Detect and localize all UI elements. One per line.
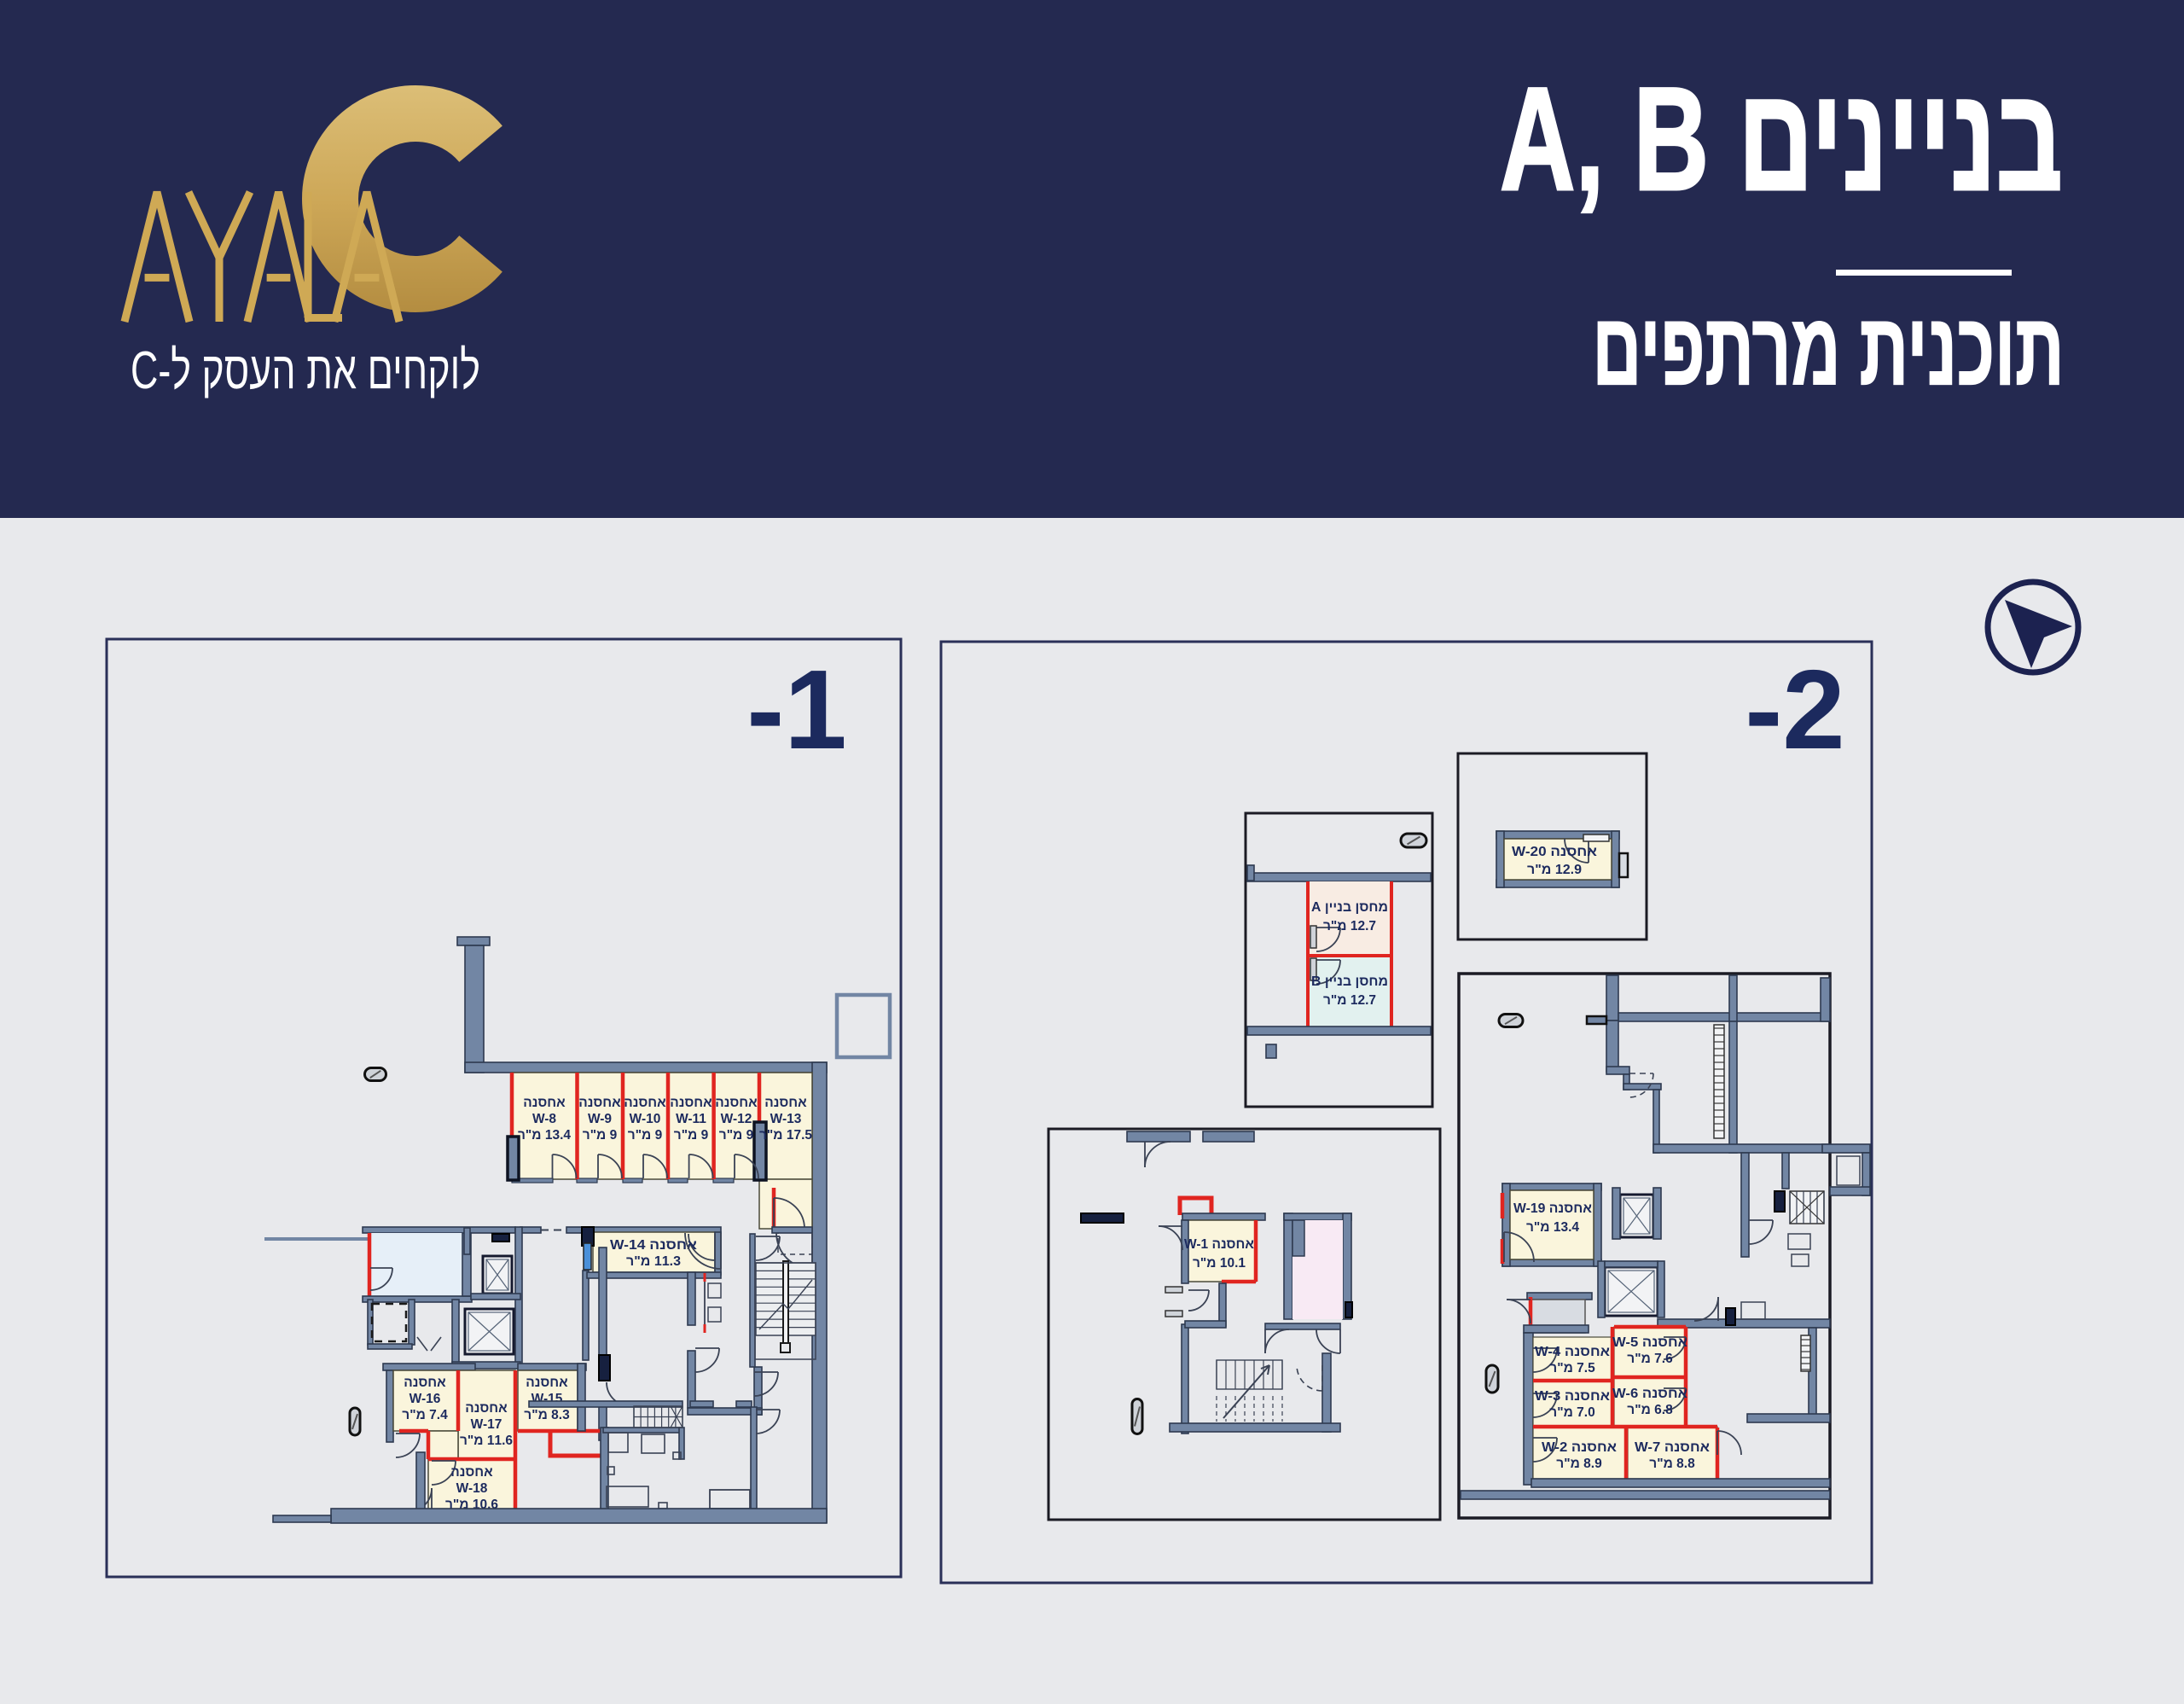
- svg-text:W-16: W-16: [409, 1392, 441, 1406]
- svg-text:W-11: W-11: [676, 1112, 706, 1126]
- svg-text:11.3 מ"ר: 11.3 מ"ר: [626, 1254, 681, 1269]
- svg-text:אחסנה: אחסנה: [624, 1096, 666, 1110]
- svg-text:10.1 מ"ר: 10.1 מ"ר: [1193, 1256, 1246, 1271]
- svg-text:12.7 מ"ר: 12.7 מ"ר: [1323, 993, 1376, 1008]
- svg-text:אחסנה: אחסנה: [404, 1375, 446, 1390]
- svg-text:-2: -2: [1745, 647, 1844, 772]
- svg-text:אחסנה: אחסנה: [450, 1465, 493, 1480]
- svg-text:8.3 מ"ר: 8.3 מ"ר: [524, 1408, 570, 1422]
- svg-text:אחסנה W-19: אחסנה W-19: [1513, 1201, 1592, 1216]
- svg-text:13.4 מ"ר: 13.4 מ"ר: [518, 1128, 571, 1143]
- svg-text:לוקחים את העסק ל-C: לוקחים את העסק ל-C: [131, 341, 480, 400]
- svg-text:9 מ"ר: 9 מ"ר: [583, 1128, 618, 1143]
- svg-text:אחסנה W-5: אחסנה W-5: [1612, 1335, 1687, 1350]
- svg-text:אחסנה W-4: אחסנה W-4: [1535, 1345, 1610, 1359]
- svg-text:W-12: W-12: [721, 1112, 752, 1126]
- svg-text:תוכנית מרתפים: תוכנית מרתפים: [1593, 292, 2065, 406]
- svg-text:7.6 מ"ר: 7.6 מ"ר: [1627, 1352, 1673, 1366]
- svg-text:8.8 מ"ר: 8.8 מ"ר: [1649, 1457, 1695, 1471]
- svg-text:17.5 מ"ר: 17.5 מ"ר: [759, 1128, 812, 1143]
- svg-text:W-9: W-9: [588, 1112, 612, 1126]
- svg-text:13.4 מ"ר: 13.4 מ"ר: [1526, 1220, 1579, 1235]
- svg-text:אחסנה W-2: אחסנה W-2: [1542, 1440, 1617, 1455]
- svg-text:9 מ"ר: 9 מ"ר: [719, 1128, 754, 1143]
- svg-text:אחסנה W-6: אחסנה W-6: [1612, 1387, 1687, 1401]
- svg-text:6.8 מ"ר: 6.8 מ"ר: [1627, 1403, 1673, 1417]
- svg-text:W-8: W-8: [532, 1112, 556, 1126]
- svg-text:אחסנה: אחסנה: [764, 1096, 807, 1110]
- svg-text:W-13: W-13: [770, 1112, 802, 1126]
- svg-text:אחסנה: אחסנה: [670, 1096, 712, 1110]
- svg-text:בניינים A, B: בניינים A, B: [1500, 57, 2063, 221]
- svg-text:מחסן בניין A: מחסן בניין A: [1311, 900, 1388, 915]
- svg-text:אחסנה: אחסנה: [465, 1401, 508, 1416]
- svg-text:אחסנה: אחסנה: [526, 1375, 568, 1390]
- svg-text:9 מ"ר: 9 מ"ר: [628, 1128, 663, 1143]
- svg-text:אחסנה W-3: אחסנה W-3: [1535, 1389, 1610, 1404]
- svg-text:8.9 מ"ר: 8.9 מ"ר: [1556, 1457, 1602, 1471]
- svg-text:W-18: W-18: [456, 1481, 488, 1496]
- svg-text:אחסנה W-20: אחסנה W-20: [1512, 845, 1597, 859]
- svg-text:12.7 מ"ר: 12.7 מ"ר: [1323, 919, 1376, 933]
- svg-text:9 מ"ר: 9 מ"ר: [674, 1128, 709, 1143]
- svg-text:אחסנה W-14: אחסנה W-14: [610, 1238, 697, 1253]
- svg-text:אחסנה W-1: אחסנה W-1: [1184, 1237, 1254, 1252]
- svg-text:7.0 מ"ר: 7.0 מ"ר: [1549, 1405, 1594, 1420]
- svg-text:11.6 מ"ר: 11.6 מ"ר: [460, 1434, 513, 1448]
- svg-text:אחסנה W-7: אחסנה W-7: [1635, 1440, 1710, 1455]
- svg-text:אחסנה: אחסנה: [523, 1096, 566, 1110]
- svg-text:W-17: W-17: [471, 1417, 502, 1432]
- svg-text:-1: -1: [746, 647, 846, 772]
- svg-text:W-10: W-10: [630, 1112, 661, 1126]
- svg-text:אחסנה: אחסנה: [578, 1096, 621, 1110]
- svg-text:12.9 מ"ר: 12.9 מ"ר: [1527, 863, 1582, 877]
- svg-text:אחסנה: אחסנה: [715, 1096, 758, 1110]
- svg-text:7.4 מ"ר: 7.4 מ"ר: [402, 1408, 448, 1422]
- svg-text:7.5 מ"ר: 7.5 מ"ר: [1549, 1361, 1595, 1375]
- svg-text:מחסן בניין B: מחסן בניין B: [1311, 974, 1388, 989]
